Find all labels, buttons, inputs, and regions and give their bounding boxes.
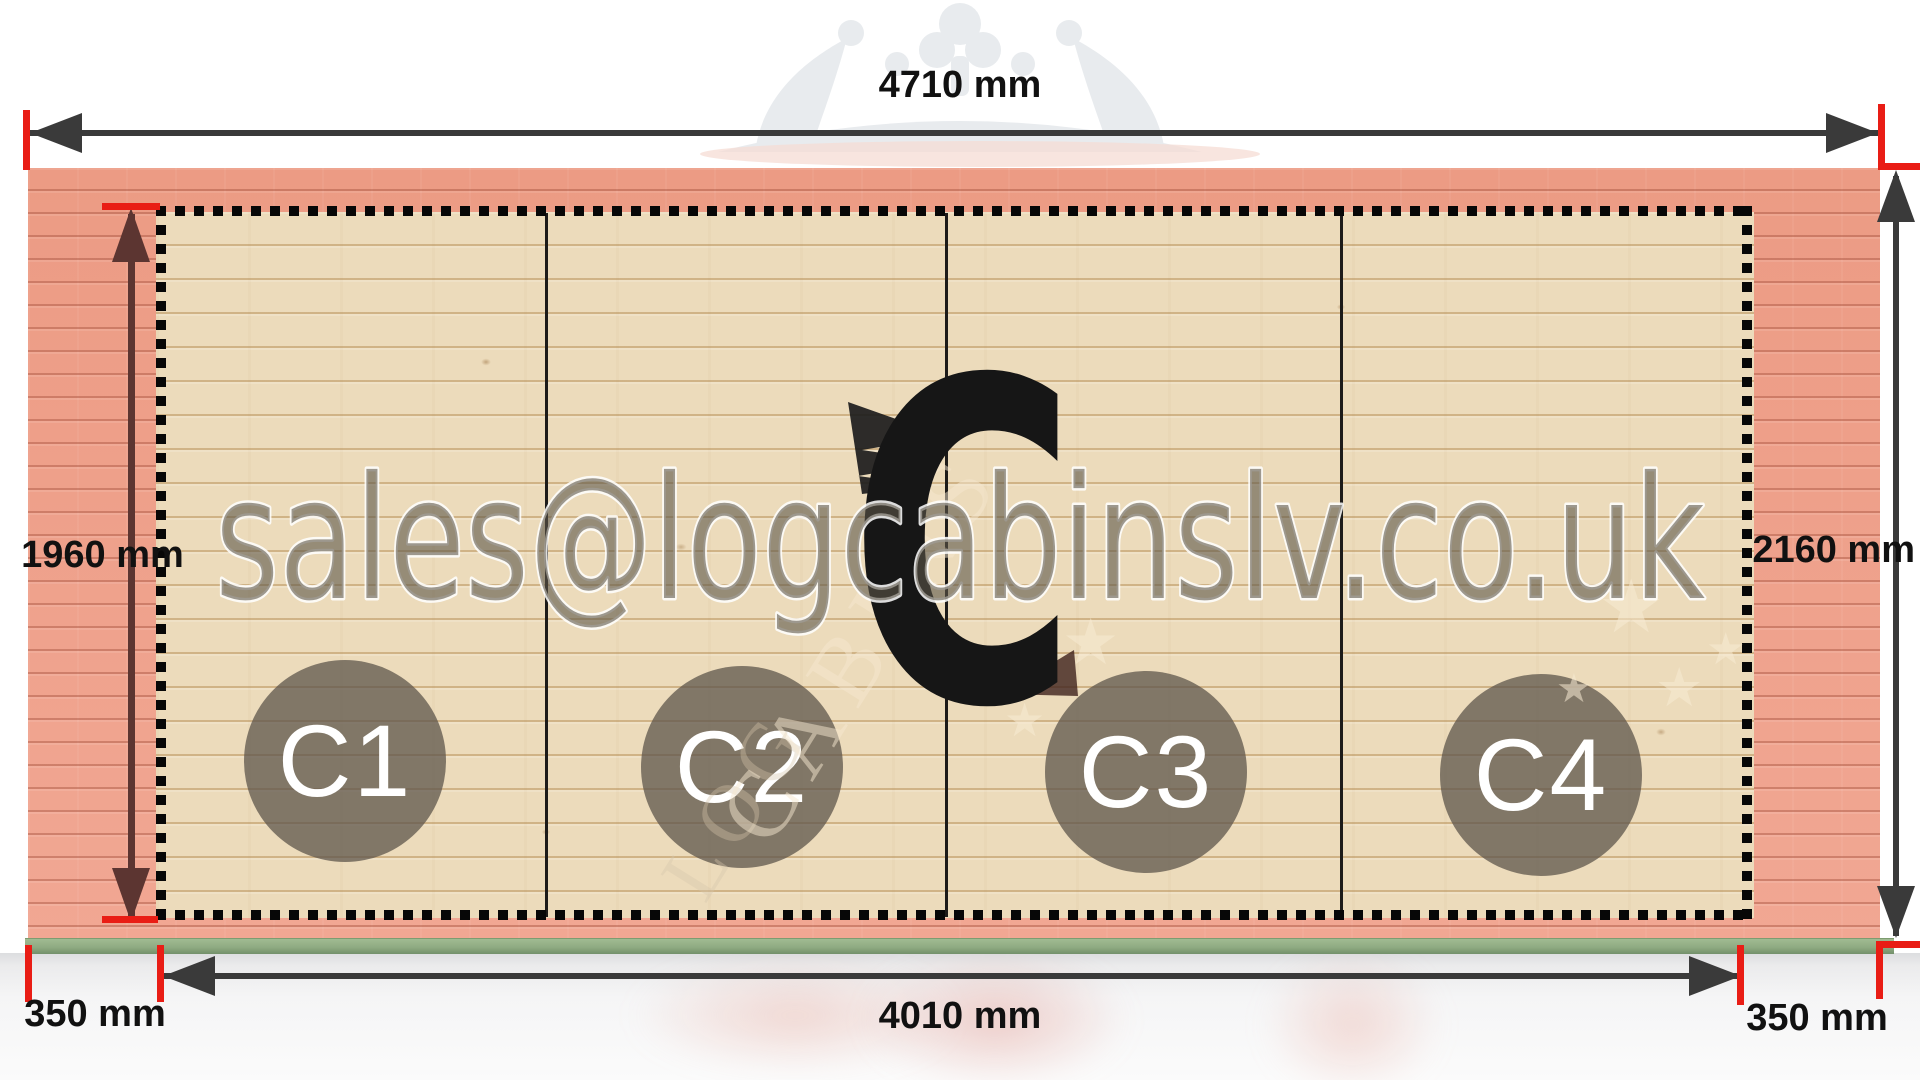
dim-bottom-tick-right bbox=[1737, 945, 1744, 1005]
panel-divider-2 bbox=[945, 213, 948, 917]
section-label: C2 bbox=[675, 709, 809, 826]
diagram-canvas: C1 C2 C3 C4 ★ ★ ★ ★ ★ ★ LOG CABINS C sal… bbox=[0, 0, 1920, 1080]
section-badge-c2: C2 bbox=[641, 666, 843, 868]
dim-bottom-line bbox=[163, 973, 1741, 979]
dim-top-label: 4710 mm bbox=[760, 64, 1160, 107]
dim-left-label: 1960 mm bbox=[20, 534, 185, 577]
arrowhead-left-icon bbox=[163, 956, 215, 996]
arrowhead-up-icon bbox=[1877, 170, 1915, 222]
dim-left-tick-top bbox=[102, 203, 160, 210]
arrowhead-down-icon bbox=[112, 868, 150, 922]
arrowhead-up-icon bbox=[112, 208, 150, 262]
section-label: C1 bbox=[278, 703, 412, 820]
dim-top-tick-right-h bbox=[1878, 163, 1920, 170]
section-label: C3 bbox=[1079, 714, 1213, 831]
crown-base-glow bbox=[700, 141, 1260, 167]
dim-right-tick-bottom-h bbox=[1876, 941, 1920, 948]
dim-overhang-right-label: 350 mm bbox=[1737, 997, 1897, 1040]
section-badge-c4: C4 bbox=[1440, 674, 1642, 876]
dotted-border-bottom bbox=[156, 910, 1752, 920]
foundation-beam bbox=[25, 938, 1894, 954]
dim-top-line bbox=[30, 130, 1878, 136]
arrowhead-left-icon bbox=[30, 113, 82, 153]
dim-overhang-left-label: 350 mm bbox=[15, 993, 175, 1036]
dim-right-label: 2160 mm bbox=[1730, 529, 1915, 572]
arrowhead-right-icon bbox=[1826, 113, 1878, 153]
section-badge-c3: C3 bbox=[1045, 671, 1247, 873]
dim-right-tick-bottom-v bbox=[1876, 941, 1883, 999]
panel-divider-3 bbox=[1340, 213, 1343, 917]
dotted-border-top bbox=[156, 206, 1752, 216]
dim-top-tick-right bbox=[1878, 104, 1885, 168]
arrowhead-down-icon bbox=[1877, 886, 1915, 938]
dim-top-tick-left bbox=[23, 110, 30, 170]
section-label: C4 bbox=[1474, 717, 1608, 834]
section-badge-c1: C1 bbox=[244, 660, 446, 862]
dim-bottom-label: 4010 mm bbox=[760, 995, 1160, 1038]
dim-left-tick-bottom bbox=[102, 916, 158, 923]
panel-divider-1 bbox=[545, 213, 548, 917]
arrowhead-right-icon bbox=[1689, 956, 1741, 996]
